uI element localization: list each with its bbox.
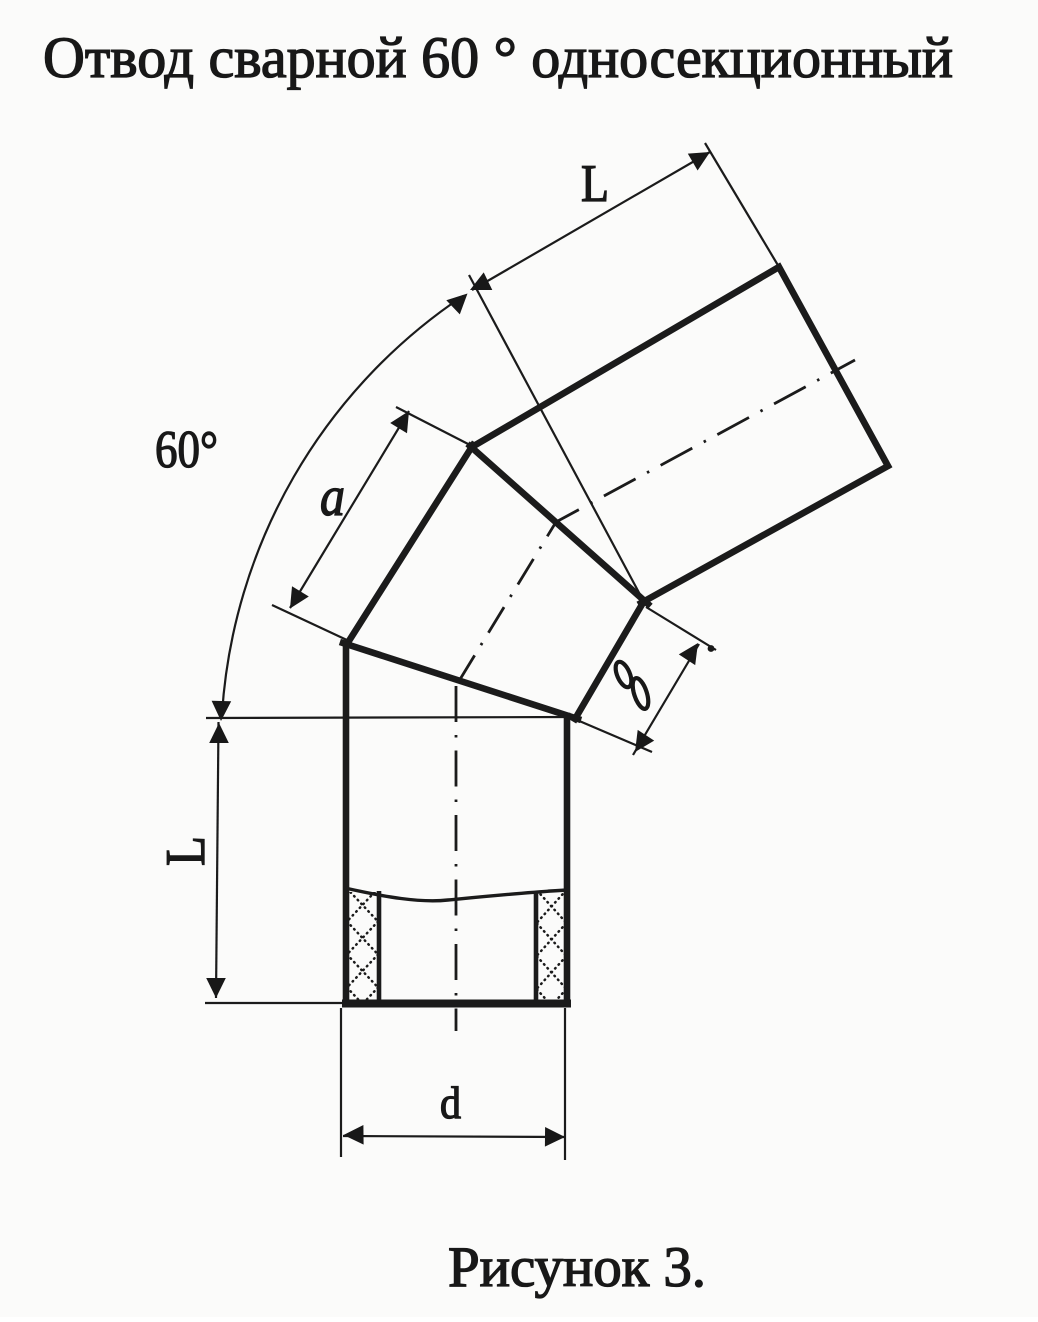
svg-text:L: L — [581, 155, 609, 213]
svg-text:d: d — [440, 1077, 461, 1128]
svg-text:L: L — [155, 836, 217, 866]
svg-text:a: a — [320, 466, 345, 528]
svg-text:Отвод сварной 60 ° односекцион: Отвод сварной 60 ° односекционный — [43, 25, 953, 90]
svg-text:60°: 60° — [155, 421, 218, 479]
svg-text:Рисунок 3.: Рисунок 3. — [448, 1236, 706, 1299]
